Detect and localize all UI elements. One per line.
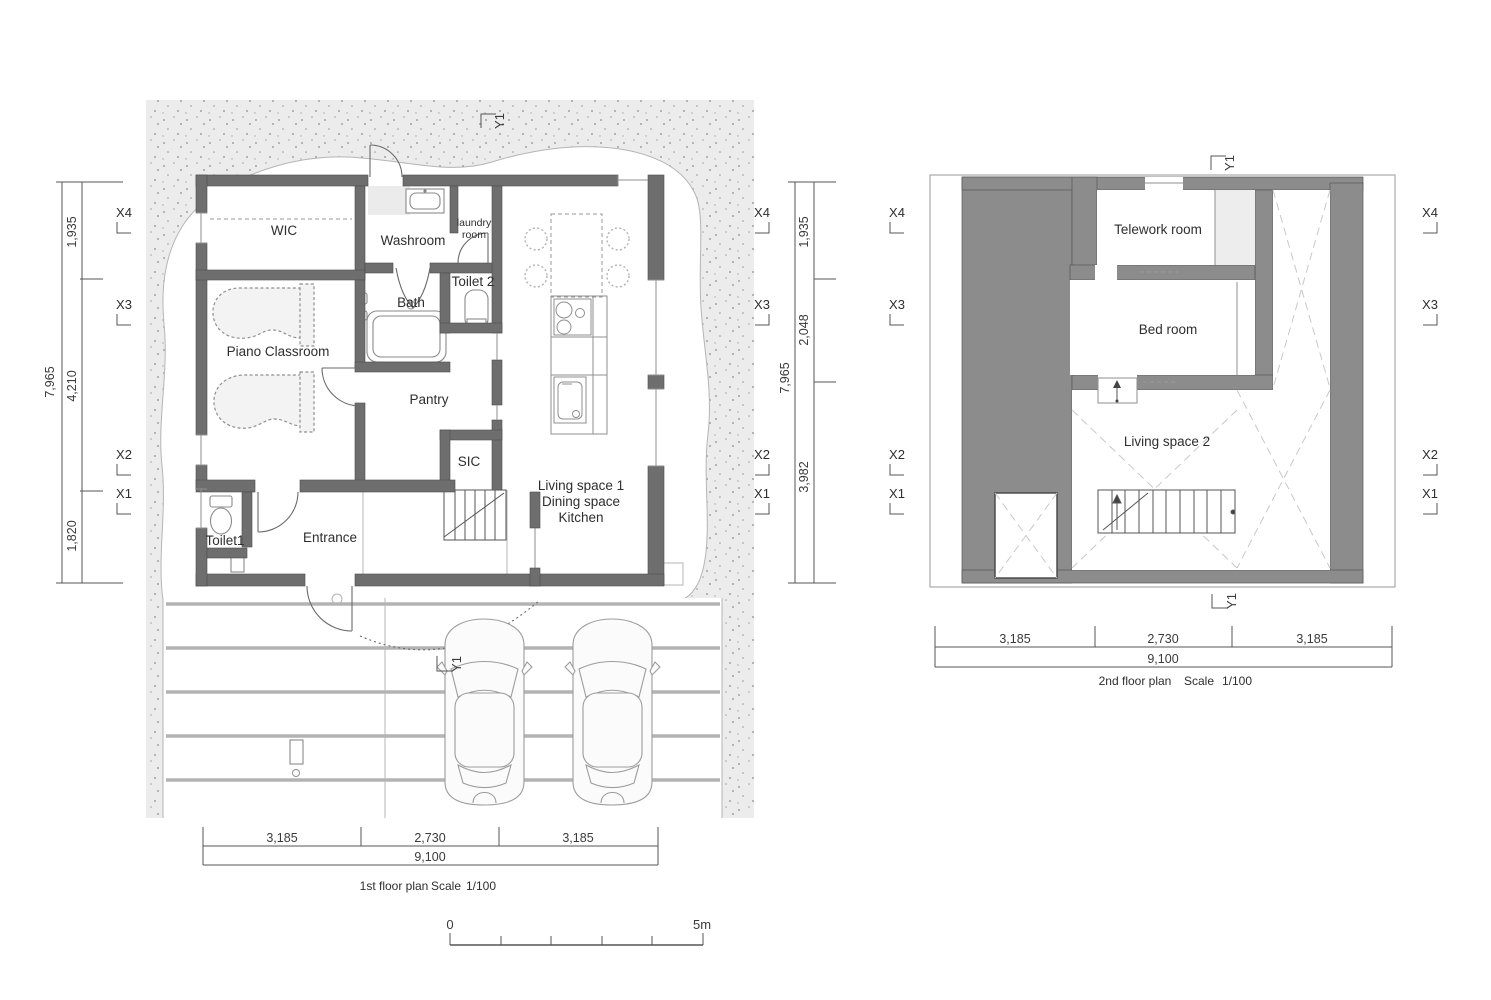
dim-left-seg3: 1,820 [65,520,79,551]
caption-1f-scale-label: Scale [431,879,461,893]
caption-1f-title: 1st floor plan [360,879,429,893]
first-floor-plan: WIC Washroom laundry room Toilet 2 Bath … [43,100,836,893]
room-label-toilet1: Toilet1 [205,533,244,548]
room-label-laundry-1: laundry [457,217,492,229]
dim-right-seg2: 2,048 [797,314,811,345]
room-label-laundry-2: room [462,229,486,241]
grid2-x3-right: X3 [1422,297,1438,312]
caption-2f: 2nd floor plan Scale 1/100 [1099,674,1253,688]
scale-bar: 0 5m [446,917,711,945]
dim-bottom-total: 9,100 [414,850,445,864]
dim-chain-1f-left: 7,965 1,935 4,210 1,820 [43,182,123,583]
grid-x2-right: X2 [754,447,770,462]
grid2-x2-right: X2 [1422,447,1438,462]
dim-left-seg2: 4,210 [65,370,79,401]
dim2-bottom-seg2: 2,730 [1147,632,1178,646]
stairs-2f [1098,490,1235,533]
stairs-1f [444,490,506,540]
room-label-sic: SIC [458,454,481,469]
room-label-living1: Living space 1 [538,478,624,493]
dim2-bottom-seg3: 3,185 [1296,632,1327,646]
room-label-bath: Bath [397,295,425,310]
room-label-entrance: Entrance [303,530,357,545]
dim-right-total: 7,965 [778,362,792,393]
caption-2f-scale-label: Scale [1184,674,1214,688]
grid2-x1-left: X1 [889,486,905,501]
grid-y1-bottom-1f: Y1 [449,656,464,672]
grid-x3-right: X3 [754,297,770,312]
grid2-x1-right: X1 [1422,486,1438,501]
grid2-x3-left: X3 [889,297,905,312]
dim-left-total: 7,965 [43,366,57,397]
grid-x1-right: X1 [754,486,770,501]
dim2-bottom-total: 9,100 [1147,652,1178,666]
caption-2f-scale-value: 1/100 [1222,674,1252,688]
grid2-x4-right: X4 [1422,205,1438,220]
caption-1f-scale-value: 1/100 [466,879,496,893]
room-label-piano: Piano Classroom [227,344,330,359]
dim-bottom-seg1: 3,185 [266,831,297,845]
grid-y1-top-1f: Y1 [492,113,507,129]
room-label-kitchen: Kitchen [558,510,603,525]
grid-x3-left: X3 [116,297,132,312]
grid2-x2-left: X2 [889,447,905,462]
caption-2f-title: 2nd floor plan [1099,674,1172,688]
room-label-dining: Dining space [542,494,620,509]
dim-bottom-seg2: 2,730 [414,831,445,845]
dim-right-seg3: 3,982 [797,461,811,492]
dim-left-seg1: 1,935 [65,216,79,247]
grid2-x4-left: X4 [889,205,905,220]
grid-y1-bottom-2f: Y1 [1224,593,1239,609]
grid-x4-right: X4 [754,205,770,220]
second-floor-plan: Telework room Bed room Living space 2 X4… [889,155,1438,688]
room-label-pantry: Pantry [409,392,448,407]
dim-chain-2f-bottom: 3,185 2,730 3,185 9,100 [935,626,1392,667]
grid-x1-left: X1 [116,486,132,501]
caption-1f: 1st floor plan Scale 1/100 [360,879,497,893]
room-label-washroom: Washroom [381,233,446,248]
scale-bar-zero: 0 [446,917,453,932]
dim-right-seg1: 1,935 [797,216,811,247]
drawing-canvas: WIC Washroom laundry room Toilet 2 Bath … [0,0,1491,1000]
dim2-bottom-seg1: 3,185 [999,632,1030,646]
grid-x2-left: X2 [116,447,132,462]
room-label-bedroom: Bed room [1139,322,1198,337]
room-label-living2: Living space 2 [1124,434,1210,449]
grid-x4-left: X4 [116,205,132,220]
scale-bar-five: 5m [693,917,711,932]
room-label-telework: Telework room [1114,222,1202,237]
floor-plan-sheet: WIC Washroom laundry room Toilet 2 Bath … [0,0,1491,1000]
dim-bottom-seg3: 3,185 [562,831,593,845]
gate-post [290,740,303,764]
grid-y1-top-2f: Y1 [1222,155,1237,171]
room-label-wic: WIC [271,223,297,238]
dim-chain-1f-bottom: 3,185 2,730 3,185 9,100 [203,827,658,865]
room-label-toilet2: Toilet 2 [452,274,495,289]
dim-chain-1f-right: 7,965 1,935 2,048 3,982 [778,182,836,583]
